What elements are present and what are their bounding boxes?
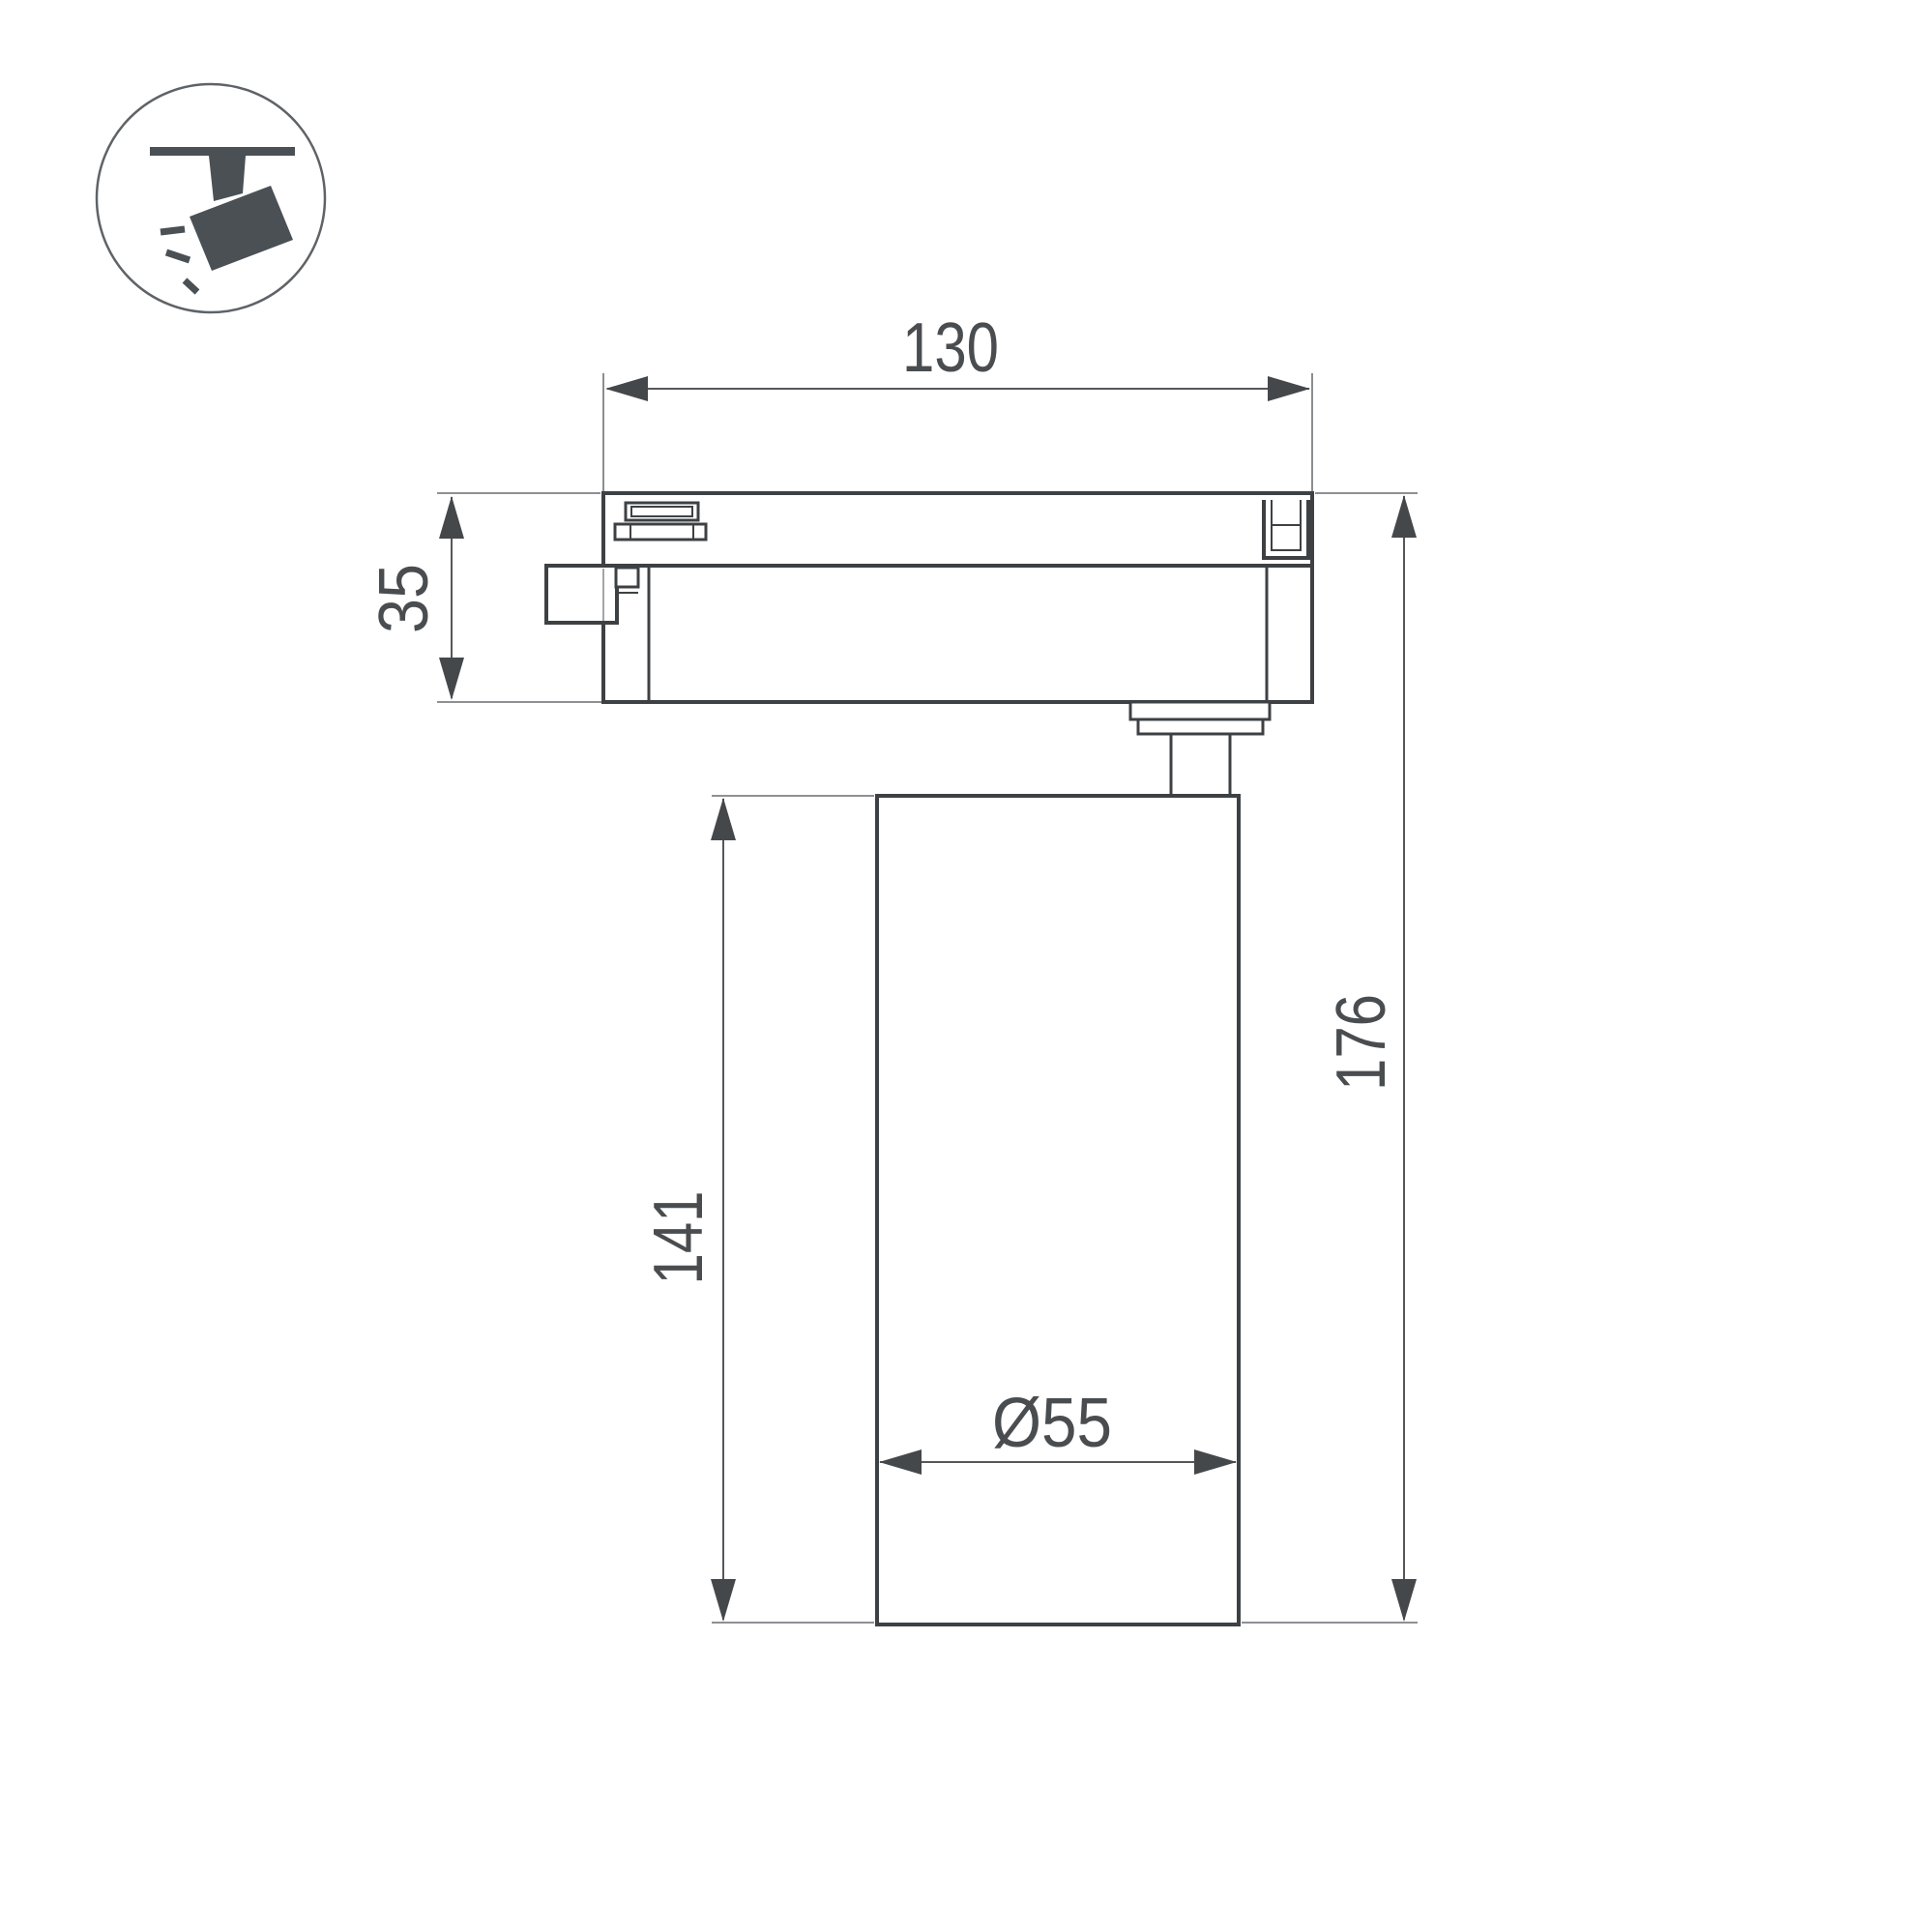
latch-box (546, 566, 617, 623)
dimension-label-diameter: Ø55 (992, 1385, 1112, 1462)
adapter-rail (603, 493, 1312, 566)
adapter-body (603, 566, 1312, 702)
cylinder-body (877, 796, 1239, 1625)
lamp-cylinder (877, 796, 1239, 1625)
rail-slot-lower (615, 524, 706, 540)
latch-notch (616, 568, 638, 587)
track-spotlight-icon (97, 84, 325, 312)
technical-drawing: 130 35 141 176 Ø55 (0, 0, 1932, 1932)
mount-stem (1171, 734, 1230, 796)
mount-step-upper (1130, 702, 1270, 719)
icon-circle (97, 84, 325, 312)
icon-track-bar (150, 147, 295, 156)
dimension-label-141: 141 (640, 1191, 717, 1285)
icon-light-ray (161, 229, 185, 232)
mount-step-lower (1138, 719, 1263, 734)
dimension-label-176: 176 (1323, 994, 1400, 1091)
dimension-label-130: 130 (902, 309, 999, 387)
rail-slot-upper (626, 503, 698, 520)
dimension-label-35: 35 (366, 564, 443, 633)
